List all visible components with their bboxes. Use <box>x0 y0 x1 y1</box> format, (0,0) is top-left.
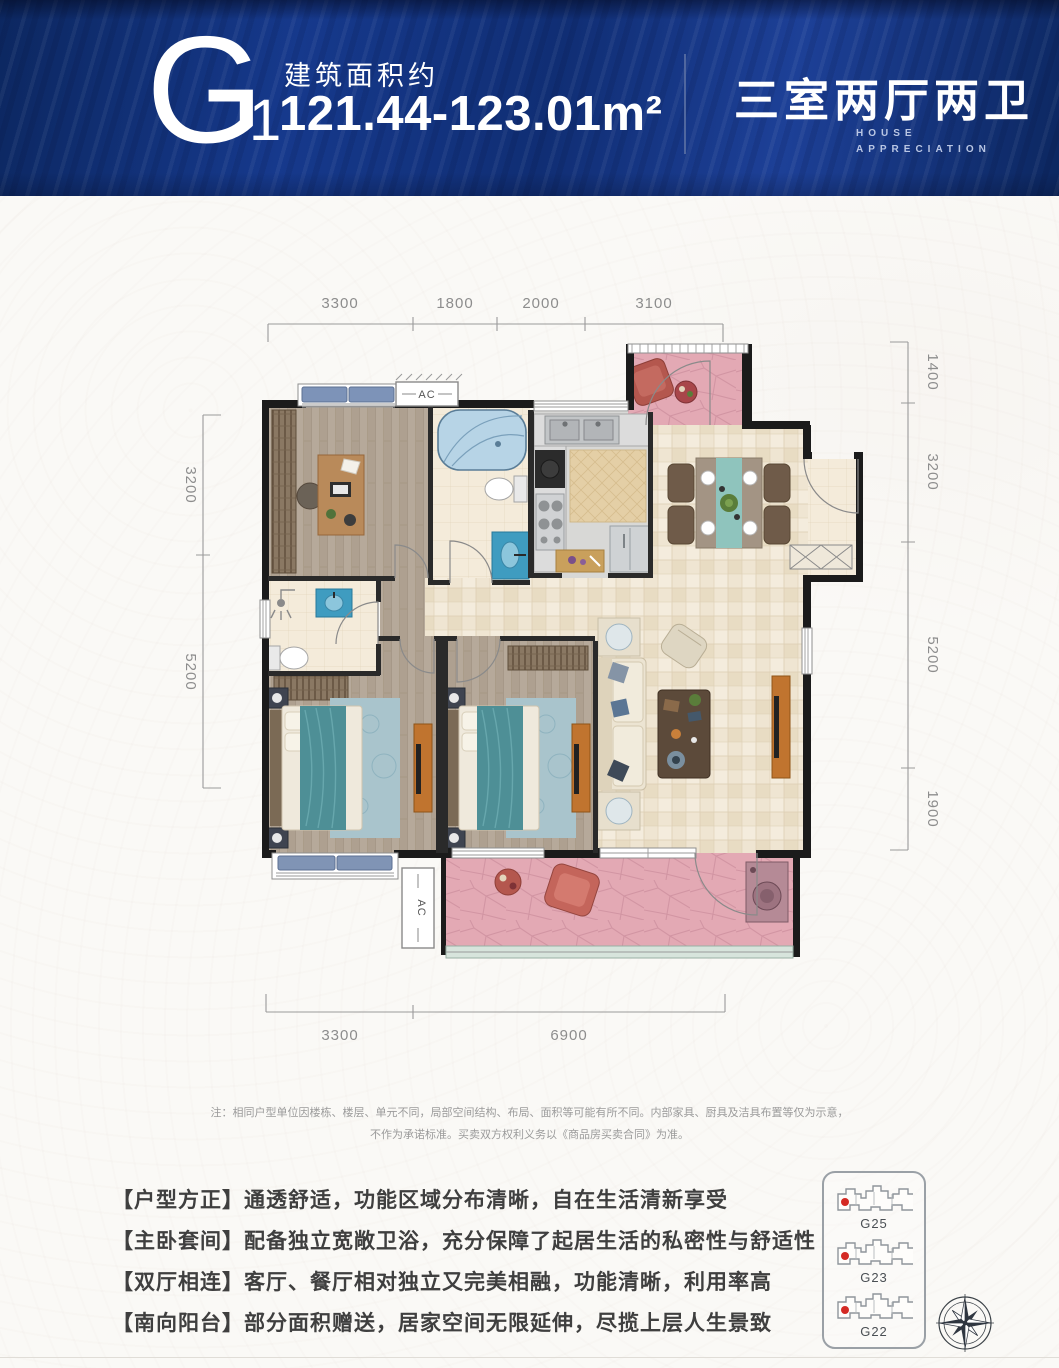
kitchen-window <box>534 401 628 411</box>
disclaimer-line2: 不作为承诺标准。买卖双方权利义务以《商品房买卖合同》为准。 <box>0 1124 1059 1146</box>
building-outline-icon <box>835 1235 913 1269</box>
bathtub <box>438 410 526 470</box>
shoe-cabinet <box>790 545 852 569</box>
page-bottom-divider <box>0 1357 1059 1358</box>
disclaimer-note: 注：相同户型单位因楼栋、楼层、单元不同，局部空间结构、布局、面积等可能有所不同。… <box>0 1102 1059 1146</box>
feature-item: 【主卧套间】配备独立宽敞卫浴，充分保障了起居生活的私密性与舒适性 <box>112 1221 816 1262</box>
layout-title: 三室两厅两卫 <box>734 64 1034 129</box>
dining-chair <box>668 464 694 502</box>
dining-chair <box>668 506 694 544</box>
dim-left-1: 5200 <box>182 653 199 690</box>
dim-top-1: 1800 <box>436 295 473 312</box>
bay-cushion <box>302 387 347 402</box>
dim-top-2: 2000 <box>522 295 559 312</box>
plan-code: G <box>146 14 264 166</box>
compass-icon <box>934 1292 996 1354</box>
toilet <box>485 478 513 500</box>
guest-bath-window <box>260 600 270 638</box>
pillow <box>611 699 630 718</box>
subtitle-appreciation: APPRECIATION <box>856 142 991 158</box>
ac-label-bottom: AC <box>415 899 427 916</box>
dim-top-3: 3100 <box>635 295 672 312</box>
study-wardrobe <box>272 410 296 573</box>
bay-cushion <box>278 856 335 870</box>
dining-chair <box>764 464 790 502</box>
subtitle-house: HOUSE <box>856 126 917 142</box>
feature-item: 【南向阳台】部分面积赠送，居家空间无限延伸，尽揽上层人生景致 <box>112 1303 816 1344</box>
header-divider <box>684 54 686 154</box>
building-label: G22 <box>860 1324 888 1339</box>
bay-cushion <box>337 856 392 870</box>
area-value: 121.44-123.01m² <box>279 86 662 142</box>
plan-code-sub: 1 <box>249 92 281 150</box>
header-banner: G 1 建筑面积约 121.44-123.01m² 三室两厅两卫 HOUSE A… <box>0 0 1059 196</box>
living-side-window <box>802 628 812 674</box>
cutting-board <box>556 550 604 572</box>
headboard <box>270 710 282 826</box>
building-label: G25 <box>860 1216 888 1231</box>
ac-label-top: AC <box>418 389 435 401</box>
unit-highlight-dot <box>841 1306 849 1314</box>
dim-bottom-0: 3300 <box>321 1027 358 1044</box>
balcony-table <box>495 869 521 895</box>
dining-chair <box>764 506 790 544</box>
dim-right-1: 3200 <box>924 453 941 490</box>
floorplan-poster: G 1 建筑面积约 121.44-123.01m² 三室两厅两卫 HOUSE A… <box>0 0 1059 1368</box>
building-label: G23 <box>860 1270 888 1285</box>
building-row: G23 <box>835 1235 913 1285</box>
toilet-tank <box>268 646 280 670</box>
dim-right-2: 5200 <box>924 636 941 673</box>
dim-right-0: 1400 <box>924 353 941 390</box>
balcony-table <box>675 381 697 403</box>
building-outline-icon <box>835 1181 913 1215</box>
tv-icon <box>774 696 779 758</box>
disclaimer-line1: 注：相同户型单位因楼栋、楼层、单元不同，局部空间结构、布局、面积等可能有所不同。… <box>0 1102 1059 1124</box>
building-outline-icon <box>835 1289 913 1323</box>
unit-highlight-dot <box>841 1252 849 1260</box>
unit-highlight-dot <box>841 1198 849 1206</box>
toilet-tank <box>514 476 527 502</box>
desk-plant <box>326 509 336 519</box>
bedroom2-window <box>452 848 544 858</box>
dim-right-3: 1900 <box>924 790 941 827</box>
south-balcony-floor <box>446 853 798 953</box>
kitchen-mat <box>570 450 646 522</box>
headboard <box>447 710 459 826</box>
toilet <box>280 647 308 669</box>
feature-item: 【户型方正】通透舒适，功能区域分布清晰，自在生活清新享受 <box>112 1180 816 1221</box>
floor-plan: AC AC 3300 1800 2000 3100 3300 6900 3200… <box>0 250 1059 1060</box>
corridor-floor <box>380 578 425 636</box>
feature-item: 【双厅相连】客厅、餐厅相对独立又完美相融，功能清晰，利用率高 <box>112 1262 816 1303</box>
dim-bottom-1: 6900 <box>550 1027 587 1044</box>
bedroom2-wardrobe <box>508 646 588 670</box>
bay-cushion <box>349 387 394 402</box>
shower-head <box>277 599 285 607</box>
feature-list: 【户型方正】通透舒适，功能区域分布清晰，自在生活清新享受 【主卧套间】配备独立宽… <box>112 1180 816 1344</box>
dim-top-0: 3300 <box>321 295 358 312</box>
building-locator: G25 G23 G22 <box>822 1171 926 1349</box>
tv-icon <box>574 744 579 794</box>
building-row: G25 <box>835 1181 913 1231</box>
tv-icon <box>416 744 421 794</box>
hallway-floor <box>425 578 595 636</box>
building-row: G22 <box>835 1289 913 1339</box>
layout-subtitle: HOUSE APPRECIATION <box>730 126 982 142</box>
dim-left-0: 3200 <box>182 466 199 503</box>
